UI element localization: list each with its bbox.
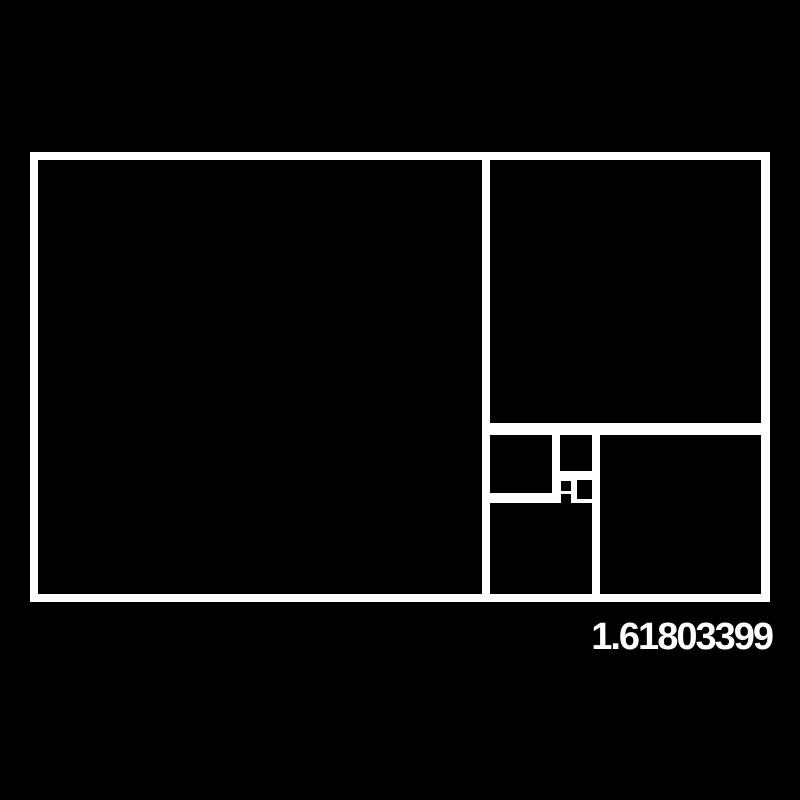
fibonacci-square-4-bottom-mid [490,503,592,594]
fibonacci-square-9-smallest [561,494,571,503]
fibonacci-square-5 [490,435,552,493]
fibonacci-square-3-bottom-right [600,435,761,594]
fibonacci-square-7 [577,480,592,499]
golden-ratio-value: 1.61803399 [591,616,772,658]
black-background: 1.61803399 [0,0,800,800]
fibonacci-square-2-top-right [490,160,761,423]
fibonacci-square-1-largest [38,160,482,594]
fibonacci-square-6 [560,435,592,471]
golden-rectangle-diagram [30,152,770,602]
fibonacci-square-8 [561,481,571,491]
